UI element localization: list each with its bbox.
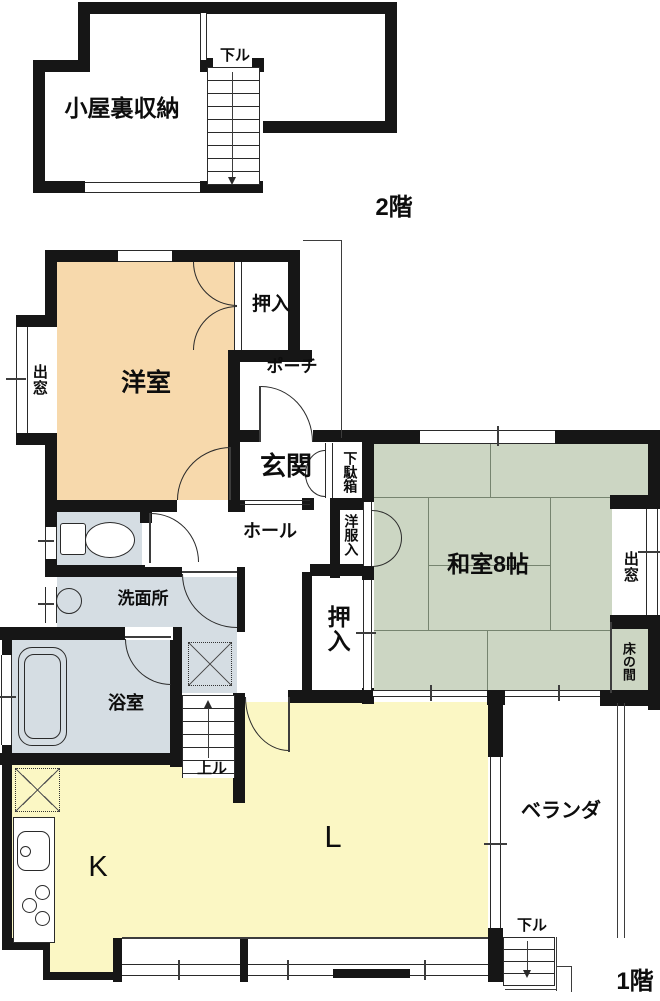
- wall: [33, 60, 45, 193]
- japanese-room-label: 和室8帖: [428, 550, 548, 578]
- hall-closet-label: 押入: [321, 594, 353, 664]
- stairs-down-2f-label: 下ル: [212, 47, 258, 65]
- floor-plan: 小屋裏収納 下ル 2階: [0, 0, 660, 1001]
- tick-mark: [497, 426, 499, 446]
- veranda-steps-treads: [503, 937, 555, 986]
- shoe-cabinet-label: 下駄箱: [337, 444, 363, 500]
- japanese-room-south-window: [505, 690, 600, 697]
- south-window: [122, 964, 240, 976]
- bay-window-east-glass: [646, 509, 658, 615]
- arrow-shaft: [527, 941, 528, 972]
- tatami-line: [490, 444, 491, 497]
- tick-mark: [287, 960, 289, 980]
- wall: [302, 572, 312, 690]
- steps-outline: [556, 937, 557, 991]
- wall: [610, 615, 650, 629]
- wall: [0, 753, 185, 765]
- wall: [237, 567, 245, 632]
- stairs-2f-treads: [207, 67, 260, 185]
- room-kitchen-bay: [50, 938, 115, 972]
- floor2-title: 2階: [364, 194, 424, 222]
- wall: [487, 690, 505, 705]
- wall: [605, 693, 660, 706]
- hall-label: ホール: [240, 520, 300, 542]
- tokonoma-line: [610, 622, 612, 693]
- wall: [43, 972, 122, 980]
- faucet: [20, 846, 31, 857]
- bathtub-inner: [24, 654, 61, 739]
- wall: [240, 938, 248, 982]
- door-arc-toilet: [151, 513, 199, 562]
- wall: [113, 938, 122, 982]
- wall: [263, 121, 397, 133]
- wall: [333, 969, 410, 978]
- wall: [610, 495, 650, 509]
- living-south-line: [122, 937, 488, 939]
- arrow-head-down: [523, 970, 531, 978]
- kitchen-label: K: [78, 850, 118, 884]
- arrow-shaft: [232, 72, 233, 178]
- tick-mark: [38, 540, 54, 542]
- entrance-label: 玄関: [250, 450, 322, 484]
- tick-mark: [38, 603, 54, 605]
- wall-opening: [200, 13, 207, 60]
- door-leaf: [288, 697, 290, 752]
- wall: [170, 627, 182, 767]
- tick-mark: [356, 632, 376, 634]
- door-leaf: [229, 447, 231, 500]
- veranda-steps-label: 下ル: [510, 917, 554, 935]
- hall-closet-front: [363, 580, 372, 690]
- stove-burner: [35, 911, 50, 926]
- veranda-label: ベランダ: [510, 798, 612, 824]
- wall: [233, 430, 261, 442]
- tick-mark: [558, 685, 560, 701]
- steps-outline: [556, 966, 572, 967]
- attic-storage-label: 小屋裏収納: [53, 94, 191, 122]
- clothes-closet-front: [363, 502, 372, 566]
- room-japanese-ne: [612, 444, 650, 497]
- steps-outline: [571, 966, 572, 992]
- clothes-closet-label: 洋服入: [338, 505, 364, 565]
- western-room-label: 洋室: [115, 368, 177, 398]
- wall: [2, 755, 12, 950]
- veranda-outline: [624, 703, 625, 938]
- porch-outline: [303, 240, 342, 241]
- tick-mark: [430, 685, 432, 701]
- tick-mark: [178, 960, 180, 980]
- refrigerator-space: [15, 768, 60, 812]
- wall: [385, 2, 397, 133]
- tatami-line: [374, 497, 650, 498]
- washing-machine-space: [188, 642, 232, 686]
- window: [118, 250, 172, 262]
- wall: [78, 2, 397, 14]
- tatami-line: [487, 630, 488, 690]
- tick-mark: [484, 843, 507, 845]
- porch-label: ポーチ: [260, 357, 324, 377]
- wall: [33, 181, 85, 193]
- floor1-title: 1階: [610, 968, 660, 996]
- wall: [45, 250, 300, 262]
- shoe-cabinet-front: [325, 443, 333, 498]
- door-leaf: [125, 636, 171, 638]
- tatami-line: [550, 497, 551, 630]
- wall: [45, 500, 177, 512]
- tick-mark: [6, 378, 26, 380]
- arrow-head-down: [228, 177, 236, 185]
- door-leaf: [259, 386, 261, 442]
- stove-burner: [22, 898, 37, 913]
- toilet-tank: [60, 523, 86, 555]
- arrow-shaft: [208, 708, 209, 758]
- steps-outline: [505, 989, 557, 990]
- stove-burner: [35, 885, 50, 900]
- door-leaf: [182, 571, 237, 573]
- tatami-line: [374, 630, 612, 631]
- wall: [302, 690, 368, 703]
- living-label: L: [315, 818, 351, 856]
- bathroom-window: [1, 655, 12, 745]
- tick-mark: [0, 696, 16, 698]
- bay-window-east-label: 出窓: [618, 541, 642, 593]
- western-closet-label: 押入: [245, 293, 297, 317]
- window: [85, 182, 200, 193]
- wall: [488, 928, 503, 982]
- veranda-outline: [617, 703, 618, 938]
- washroom-window: [45, 587, 57, 623]
- bay-window-west-label: 出窓: [27, 354, 51, 406]
- entrance-step-line: [240, 500, 310, 505]
- wall: [288, 690, 302, 703]
- porch-outline: [341, 240, 342, 438]
- door-arc-entrance: [261, 386, 313, 442]
- stairs-up-label: 上ル: [190, 760, 234, 778]
- arrow-head-up: [204, 700, 212, 708]
- japanese-room-north-window: [420, 430, 555, 444]
- toilet-bowl: [85, 522, 135, 558]
- wall: [16, 315, 57, 327]
- toilet-window: [45, 527, 57, 559]
- tick-mark: [424, 960, 426, 980]
- washroom-label: 洗面所: [100, 589, 186, 609]
- washbasin: [56, 588, 82, 614]
- wall: [130, 567, 182, 577]
- tokonoma-label: 床の間: [615, 632, 641, 690]
- bathroom-label: 浴室: [100, 693, 152, 713]
